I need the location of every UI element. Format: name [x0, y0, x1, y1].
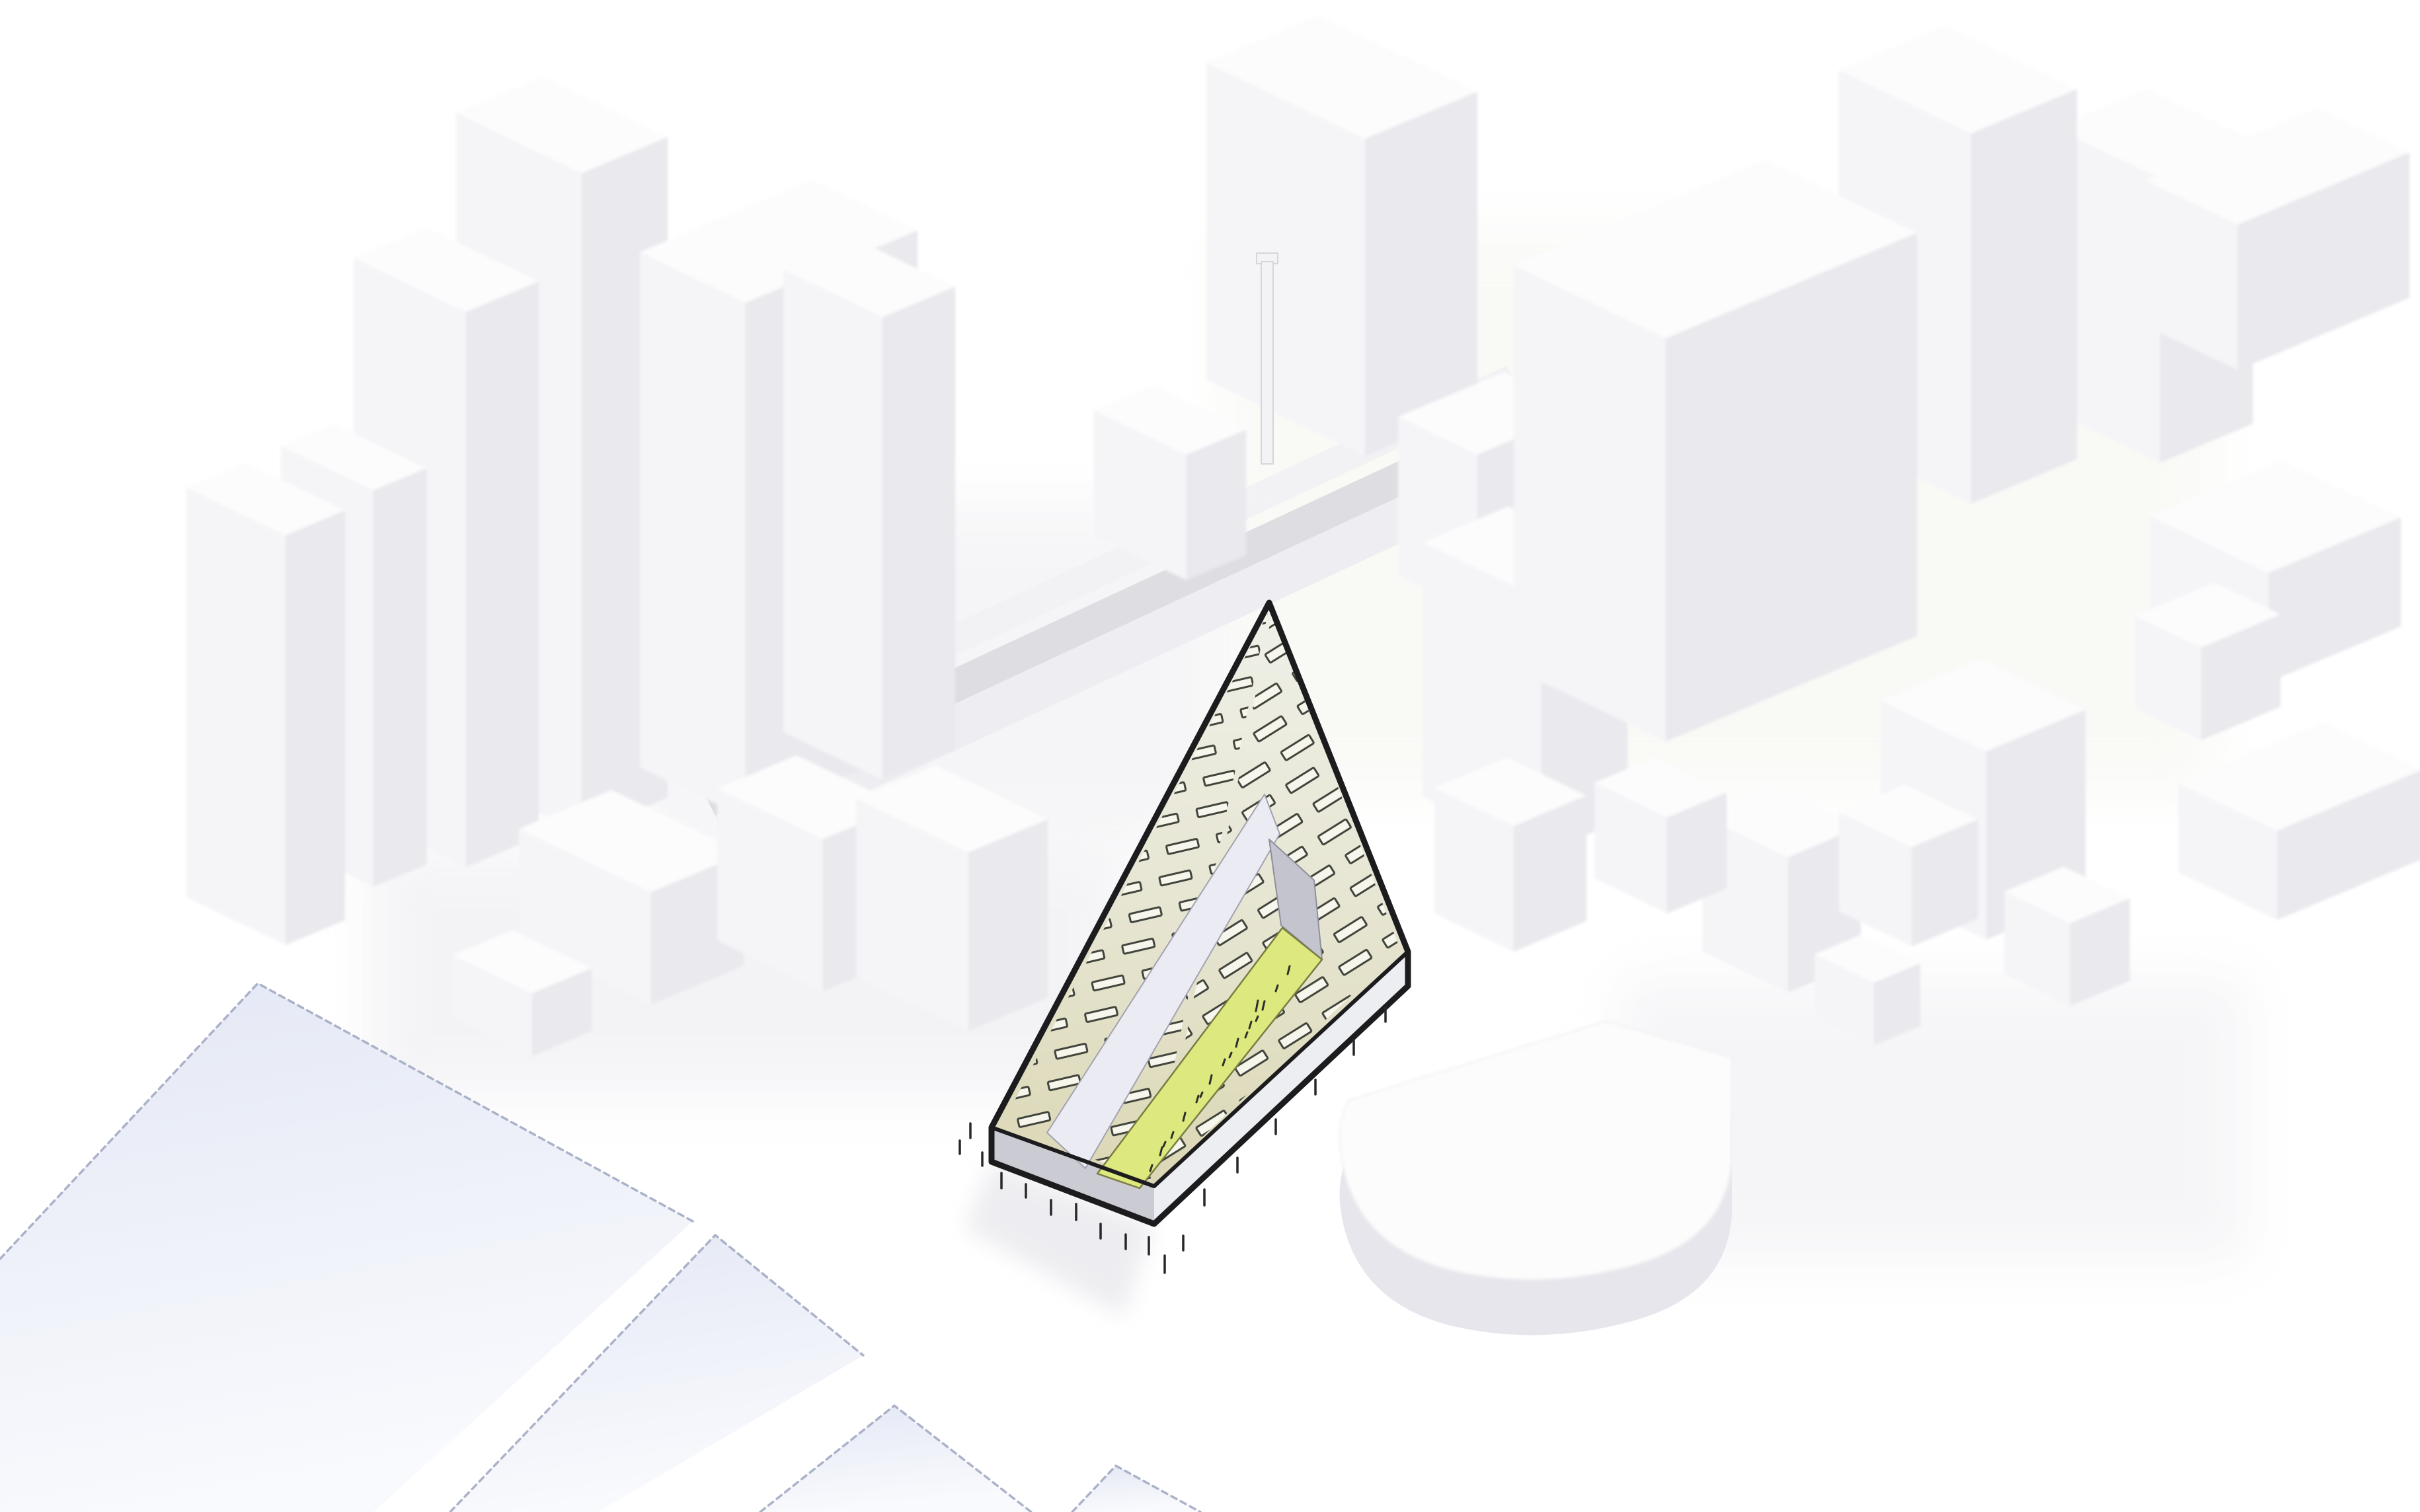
antenna-mast — [1261, 262, 1273, 464]
context-slab-far-left — [186, 463, 345, 945]
context-podium-northeast — [1434, 757, 1586, 952]
context-block-right-large — [1514, 160, 1917, 741]
site-massing-canvas — [0, 0, 2420, 1512]
figure — [0, 0, 2420, 1512]
context-tower-center — [1206, 15, 1477, 456]
context-tower-left-mid — [783, 239, 955, 780]
